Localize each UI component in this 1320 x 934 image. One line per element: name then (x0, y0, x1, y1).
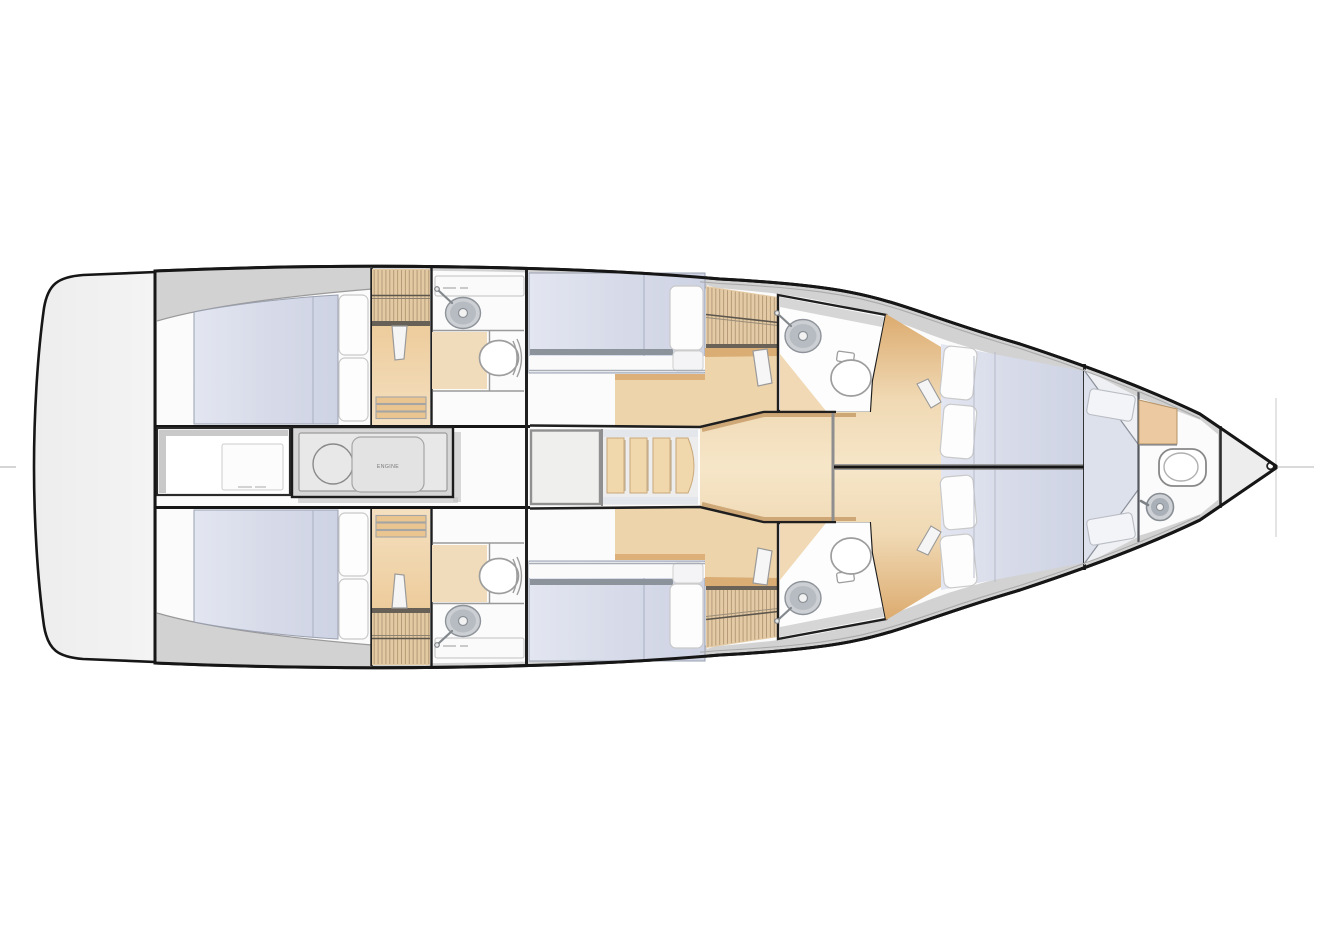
svg-text:ENGINE: ENGINE (377, 464, 399, 470)
